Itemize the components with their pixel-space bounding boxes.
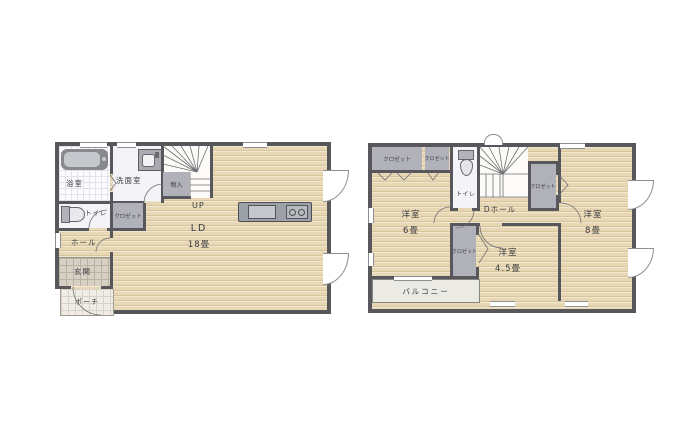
balcony-label: バルコニー <box>402 286 449 297</box>
living-dining-label-block: LD 18畳 <box>164 223 234 250</box>
staircase-2f <box>480 147 528 197</box>
wall <box>558 147 561 203</box>
wall <box>528 161 557 164</box>
room8-label-block: 洋室 8畳 <box>562 208 624 236</box>
room-size-label: 6畳 <box>380 224 442 236</box>
kitchen-sink-icon <box>248 205 276 219</box>
wall <box>163 196 191 199</box>
floor-plan-canvas: ポーチ <box>0 0 678 433</box>
window <box>55 233 61 248</box>
toilet-label: トイレ <box>456 192 476 198</box>
door-arc <box>323 253 349 285</box>
bathtub-icon <box>61 149 108 170</box>
wall <box>502 223 561 226</box>
hall-label: Dホール <box>470 204 530 215</box>
ld-size-label: 18畳 <box>164 238 234 250</box>
window <box>560 143 585 149</box>
window <box>243 142 267 148</box>
closet-label: クロゼット <box>425 155 450 162</box>
wall <box>450 223 453 278</box>
wall <box>558 223 561 301</box>
room-label: 洋室 <box>380 208 442 220</box>
wall <box>110 146 113 174</box>
room-size-label: 4.5畳 <box>476 262 540 274</box>
room-size-label: 8畳 <box>562 224 624 236</box>
bathtub-faucet-icon <box>102 157 106 161</box>
wall <box>476 223 479 235</box>
stairs-up-label: UP <box>192 202 205 210</box>
closet-2f-b: クロゼット <box>425 147 449 170</box>
wall <box>372 170 450 173</box>
wall <box>143 203 146 231</box>
closet-label: クロゼット <box>530 183 555 190</box>
entrance-step-line <box>59 257 110 258</box>
closet-2f-d: クロゼット <box>453 226 476 276</box>
kitchen-counter-icon <box>238 202 312 222</box>
entrance-label: 玄関 <box>74 268 91 276</box>
window-arc <box>484 134 503 145</box>
wall <box>59 286 71 289</box>
window <box>117 142 136 148</box>
porch-label: ポーチ <box>61 289 113 315</box>
fold-door-mark <box>377 172 412 180</box>
door-arc <box>628 248 654 278</box>
sink-basin <box>142 154 155 167</box>
room-label: 洋室 <box>476 246 540 258</box>
wall <box>101 286 113 289</box>
closet-label: クロゼット <box>453 248 476 255</box>
door-arc <box>480 226 502 248</box>
closet-2f-a: クロゼット <box>372 147 422 170</box>
balcony-door-window <box>394 276 432 281</box>
window <box>80 142 107 148</box>
ld-label: LD <box>164 223 234 234</box>
burner-icon <box>298 209 305 216</box>
wall <box>450 147 453 211</box>
door-arc <box>628 180 654 210</box>
window <box>368 208 374 223</box>
storage-box: 物入 <box>163 172 190 196</box>
stove-icon <box>286 205 308 219</box>
storage-label: 物入 <box>170 180 182 189</box>
window <box>490 301 515 307</box>
wall <box>210 146 213 198</box>
window <box>565 301 588 307</box>
toilet-bowl-icon <box>69 207 85 222</box>
room6-label-block: 洋室 6畳 <box>380 208 442 236</box>
porch-area: ポーチ <box>60 289 114 316</box>
wall <box>110 252 113 288</box>
window <box>368 253 374 266</box>
wall <box>528 161 531 210</box>
fold-door-mark <box>427 172 439 180</box>
toilet-label: トイレ <box>85 210 108 217</box>
vanity-sink-icon <box>138 149 163 171</box>
door-arc <box>96 238 110 252</box>
wall <box>477 147 480 208</box>
room45-label-block: 洋室 4.5畳 <box>476 246 540 274</box>
faucet-icon <box>155 152 159 158</box>
closet-label: クロゼット <box>114 212 142 220</box>
floor1-plan: ポーチ <box>55 142 331 314</box>
hall-label: ホール <box>71 239 97 247</box>
floor2-plan: クロゼット クロゼット クロゼット クロゼット バルコニー <box>368 143 636 313</box>
wall <box>450 208 458 211</box>
door-arc <box>323 170 349 202</box>
washroom-label: 洗面室 <box>116 177 142 185</box>
wall-cutout <box>54 289 60 316</box>
bathroom-label: 浴室 <box>66 180 83 188</box>
closet-2f-c: クロゼット <box>530 164 556 208</box>
closet-label: クロゼット <box>383 155 411 163</box>
wall <box>59 228 89 231</box>
balcony: バルコニー <box>372 279 480 303</box>
room-label: 洋室 <box>562 208 624 220</box>
closet-1f: クロゼット <box>113 203 143 228</box>
wall <box>110 230 113 238</box>
wall <box>528 208 559 211</box>
bathtub-basin <box>64 152 100 167</box>
burner-icon <box>289 209 296 216</box>
